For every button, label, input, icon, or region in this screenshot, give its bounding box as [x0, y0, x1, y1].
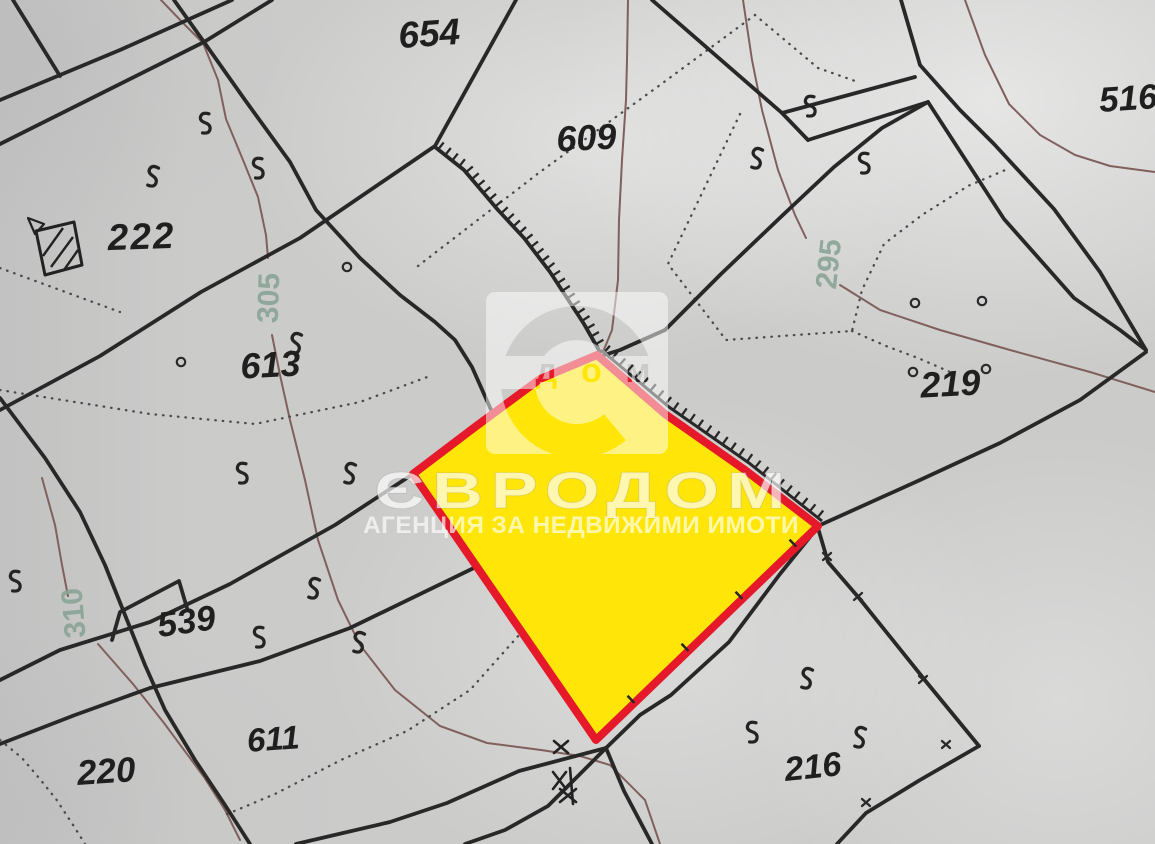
svg-text:611: 611 [246, 718, 301, 759]
svg-text:216: 216 [782, 745, 844, 789]
svg-text:654: 654 [397, 11, 461, 56]
svg-text:305: 305 [252, 272, 287, 323]
svg-text:609: 609 [555, 115, 617, 159]
svg-text:222: 222 [106, 215, 176, 258]
svg-text:АГЕНЦИЯ ЗА НЕДВИЖИМИ ИМОТИ: АГЕНЦИЯ ЗА НЕДВИЖИМИ ИМОТИ [363, 512, 799, 539]
svg-text:613: 613 [239, 342, 301, 386]
svg-text:295: 295 [810, 237, 848, 290]
svg-text:ЄВРОДОМ: ЄВРОДОМ [374, 462, 793, 519]
svg-text:219: 219 [918, 361, 981, 405]
svg-text:516: 516 [1098, 77, 1155, 120]
svg-text:310: 310 [55, 587, 92, 640]
svg-text:220: 220 [75, 750, 138, 793]
svg-text:539: 539 [155, 598, 219, 645]
